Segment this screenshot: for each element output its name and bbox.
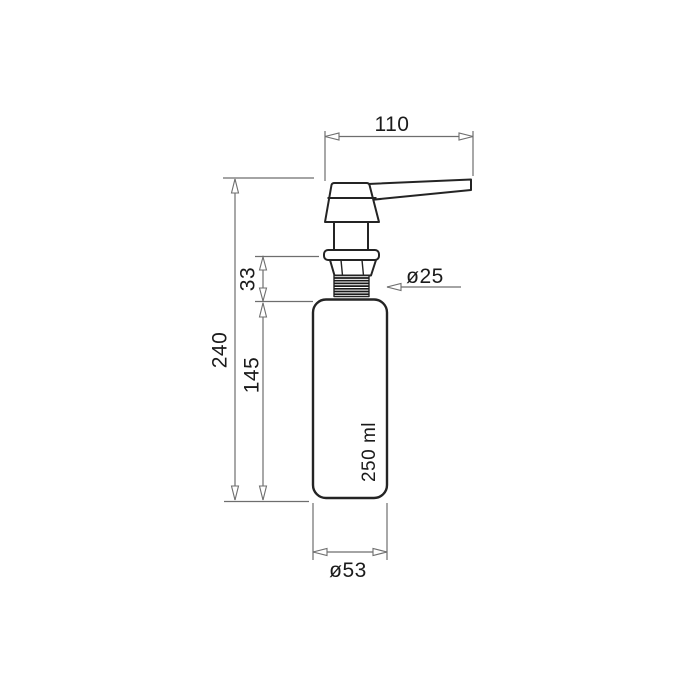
arrowhead-left-icon — [313, 549, 327, 556]
pump-neck — [334, 222, 368, 251]
dim-label-thread-diameter: ø25 — [406, 265, 444, 288]
dimension-145-group: 145 — [241, 303, 267, 500]
arrowhead-up-icon — [232, 179, 239, 193]
dim-label-bottle-diameter: ø53 — [329, 559, 367, 582]
pump-head — [325, 183, 379, 222]
pump-spout — [368, 180, 471, 201]
arrowhead-up-icon — [260, 303, 267, 317]
dim-label-bottle-height: 145 — [241, 357, 264, 394]
dimension-240-group: 240 — [209, 178, 315, 502]
mounting-flange — [324, 250, 379, 260]
dim-label-total-height: 240 — [209, 332, 232, 369]
technical-drawing-canvas: 110 240 33 145 ø25 — [0, 0, 700, 700]
soap-dispenser-drawing: 110 240 33 145 ø25 — [0, 0, 700, 700]
dispenser-object-group: 250 ml — [313, 180, 471, 499]
arrowhead-up-icon — [260, 257, 267, 270]
arrowhead-right-icon — [459, 133, 473, 140]
bottle-capacity-label: 250 ml — [359, 422, 380, 482]
dimension-d53-group: ø53 — [313, 503, 387, 582]
dimension-d25-group: ø25 — [387, 265, 461, 291]
arrowhead-down-icon — [260, 288, 267, 301]
arrowhead-right-icon — [373, 549, 387, 556]
locking-nut — [330, 260, 376, 276]
arrowhead-down-icon — [232, 486, 239, 500]
dimension-33-group: 33 — [237, 257, 320, 302]
dim-label-spout-width: 110 — [375, 113, 410, 136]
dim-label-neck-section: 33 — [237, 267, 260, 291]
arrowhead-down-icon — [260, 486, 267, 500]
arrowhead-left-icon — [325, 133, 339, 140]
arrowhead-left-icon — [387, 284, 401, 291]
thread-ridges — [334, 278, 369, 294]
dimension-110-group: 110 — [325, 113, 473, 181]
